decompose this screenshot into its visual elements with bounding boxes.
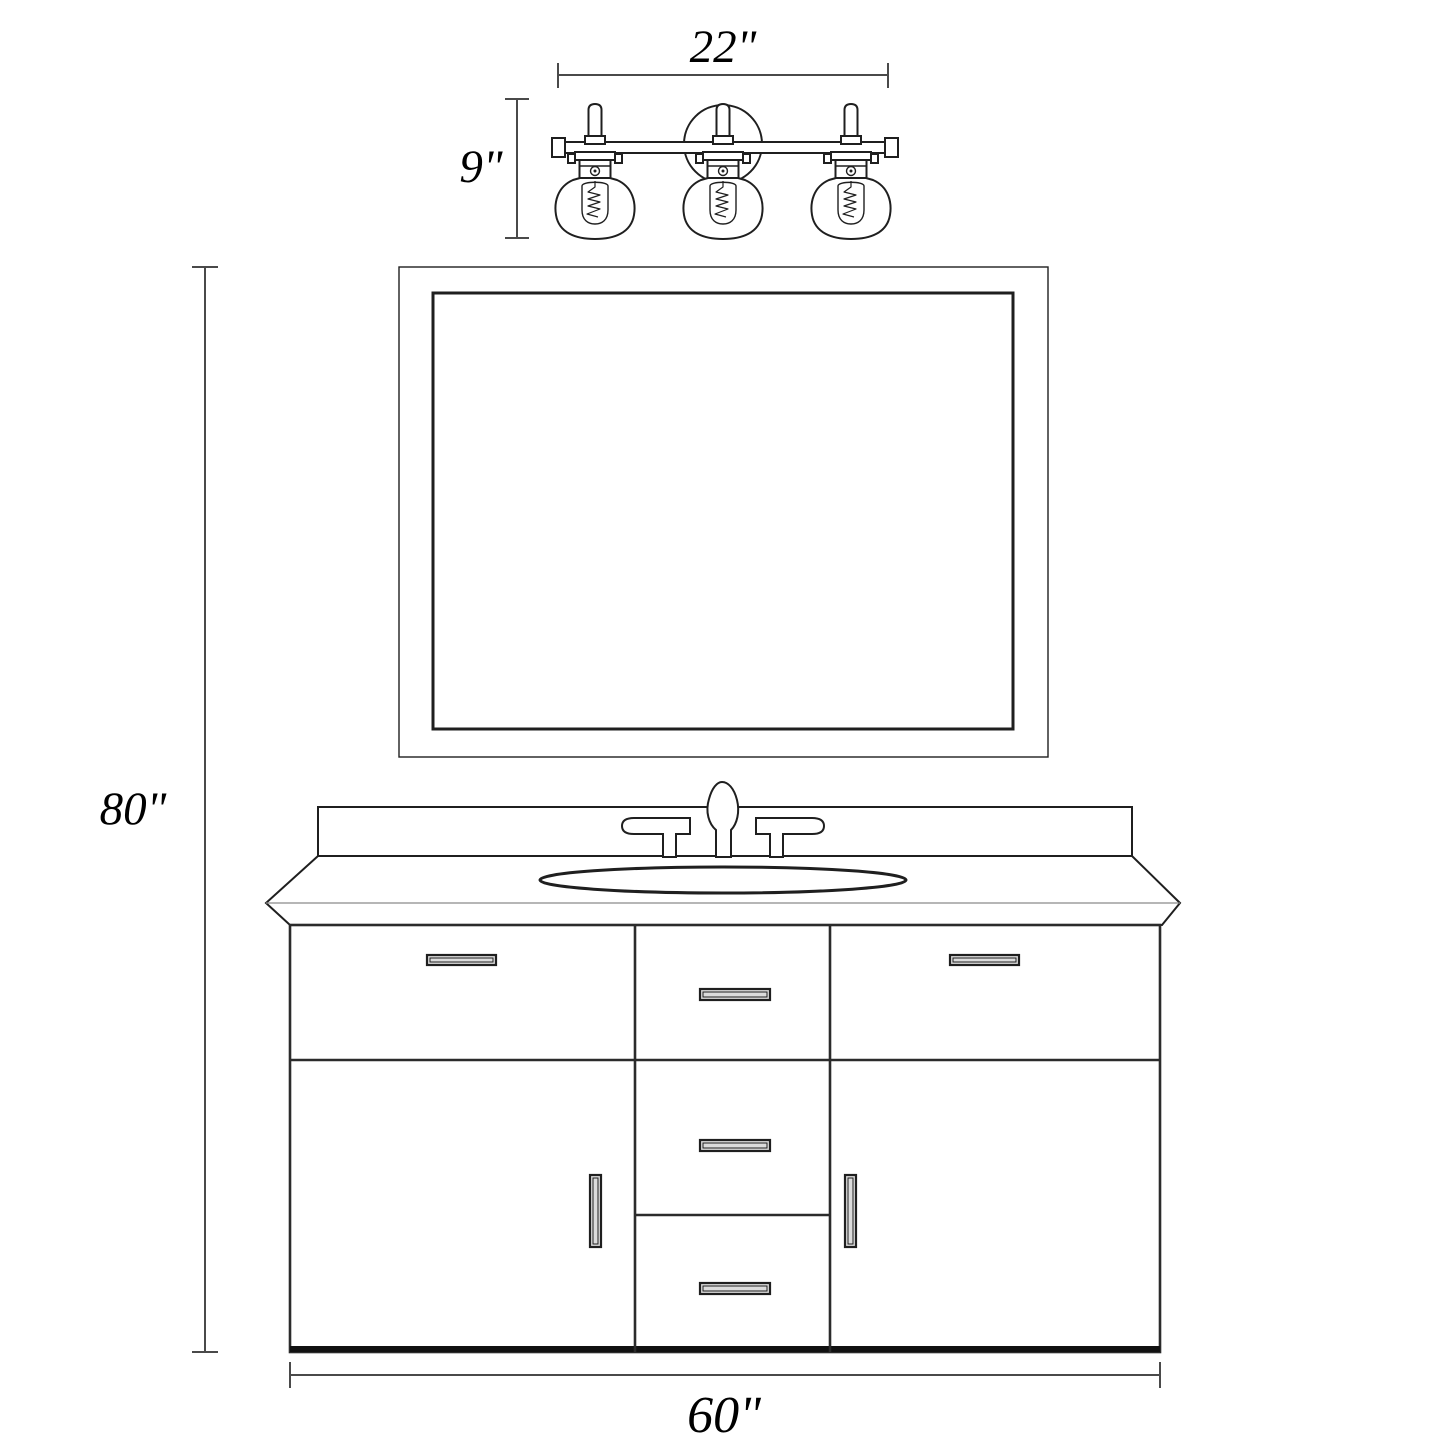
- door-handle-left: [590, 1175, 601, 1247]
- door-handle-right: [845, 1175, 856, 1247]
- diagram-canvas: 22" 9": [0, 0, 1445, 1445]
- sink-basin: [540, 867, 906, 893]
- lamp-flange: [703, 152, 743, 160]
- dimension-vanity-width: 60": [290, 1362, 1160, 1444]
- dim-label-22: 22": [690, 21, 757, 73]
- vanity-light-fixture: [552, 104, 898, 239]
- drawer-handle-middle-2: [700, 1140, 770, 1151]
- drawer-handle-middle-1: [700, 989, 770, 1000]
- fixture-bar-endcap-left: [552, 138, 565, 157]
- drawer-handle-right-top: [950, 955, 1019, 965]
- lamp-flange: [575, 152, 615, 160]
- lamp-flange: [831, 152, 871, 160]
- lamp-side-tab: [871, 154, 878, 163]
- dim-label-60: 60": [687, 1387, 762, 1444]
- lamp-side-tab: [824, 154, 831, 163]
- vanity-dimension-diagram: 22" 9": [0, 0, 1445, 1445]
- vanity-cabinet: [290, 925, 1160, 1352]
- dimension-total-height: 80": [100, 267, 218, 1352]
- dim-label-9: 9": [459, 141, 503, 193]
- lamp-screw-dot: [722, 170, 725, 173]
- countertop: [266, 856, 1180, 925]
- drawer-handle-left-top: [427, 955, 496, 965]
- fixture-bar-endcap-right: [885, 138, 898, 157]
- lamp-side-tab: [696, 154, 703, 163]
- dimension-light-width: 22": [558, 21, 888, 88]
- cabinet-base-strip: [290, 1346, 1160, 1352]
- lamp-collar: [841, 136, 861, 144]
- drawer-handle-middle-3: [700, 1283, 770, 1294]
- lamp-collar: [585, 136, 605, 144]
- mirror: [399, 267, 1048, 757]
- lamp-side-tab: [568, 154, 575, 163]
- dim-label-80: 80": [100, 783, 167, 835]
- lamp-side-tab: [615, 154, 622, 163]
- mirror-inner-frame: [433, 293, 1013, 729]
- lamp-side-tab: [743, 154, 750, 163]
- lamp-collar: [713, 136, 733, 144]
- lamp-screw-dot: [850, 170, 853, 173]
- dimension-light-height: 9": [459, 99, 529, 238]
- lamp-screw-dot: [594, 170, 597, 173]
